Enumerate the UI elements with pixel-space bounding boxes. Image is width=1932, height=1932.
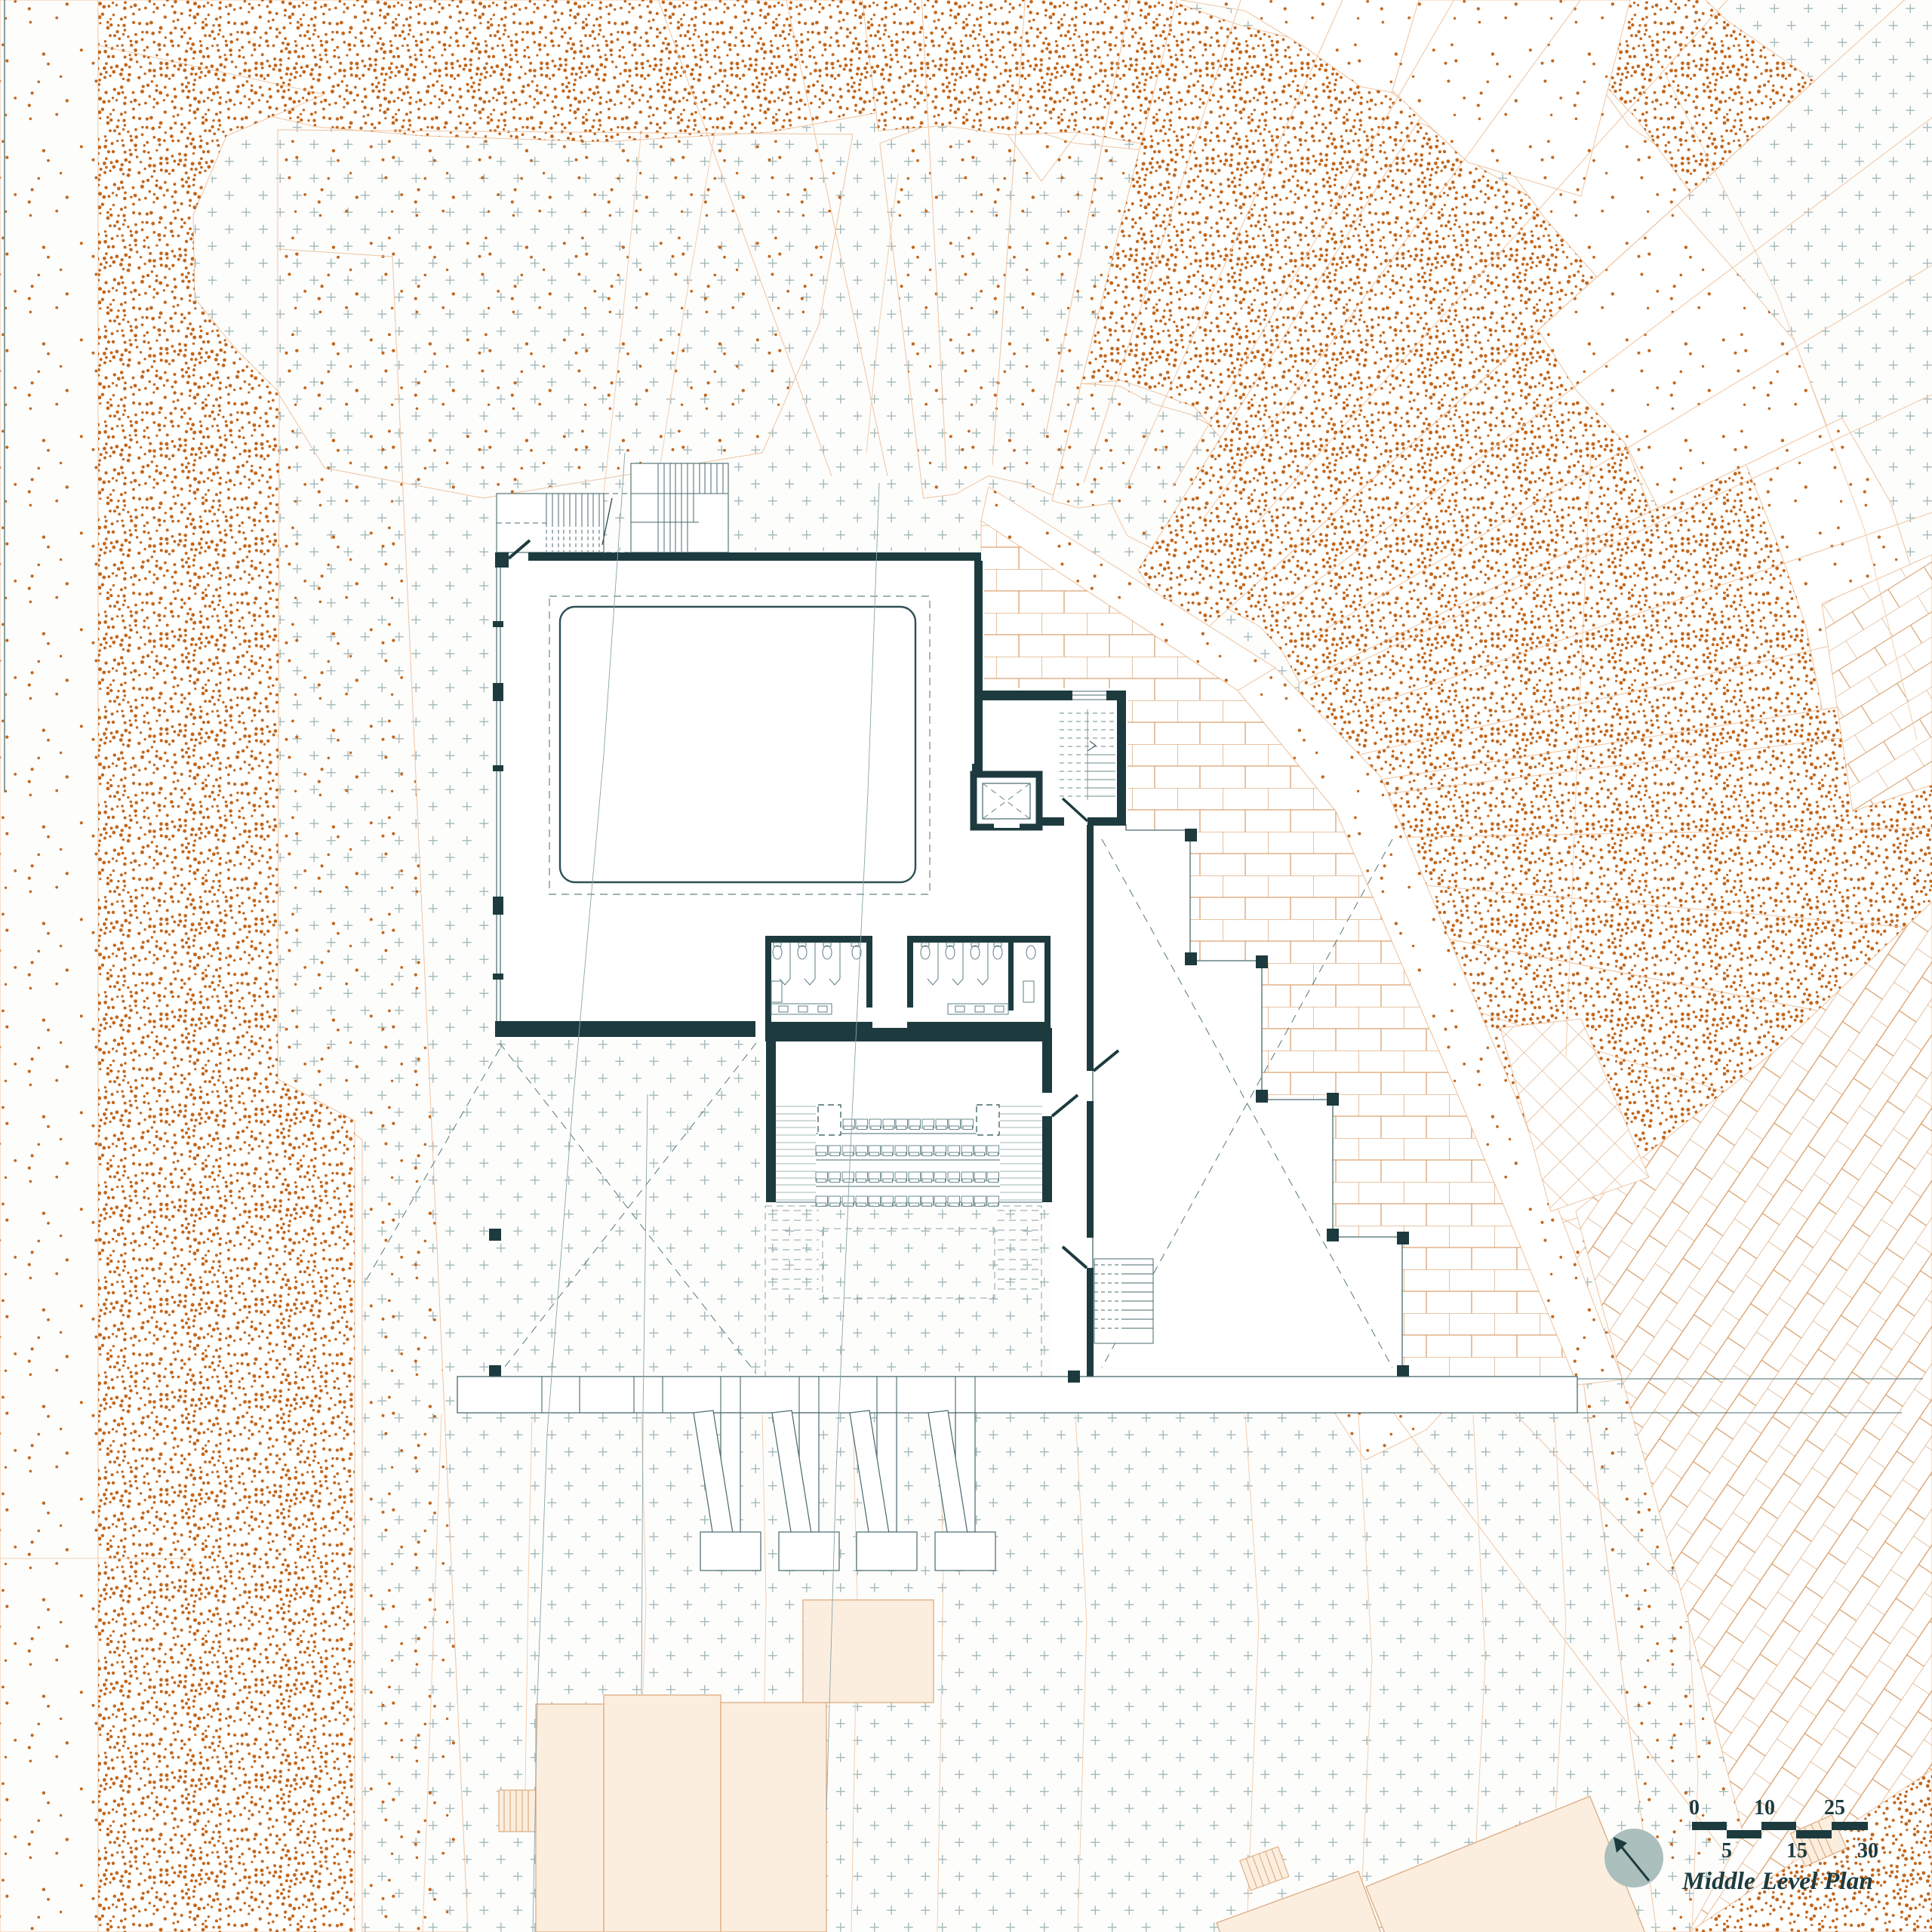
svg-text:15: 15 (1786, 1839, 1807, 1863)
svg-text:Middle Level Plan: Middle Level Plan (1681, 1868, 1873, 1895)
svg-text:30: 30 (1857, 1839, 1878, 1863)
svg-text:5: 5 (1721, 1839, 1732, 1863)
svg-text:0: 0 (1689, 1796, 1700, 1820)
svg-text:10: 10 (1754, 1796, 1775, 1820)
svg-text:25: 25 (1824, 1796, 1845, 1820)
